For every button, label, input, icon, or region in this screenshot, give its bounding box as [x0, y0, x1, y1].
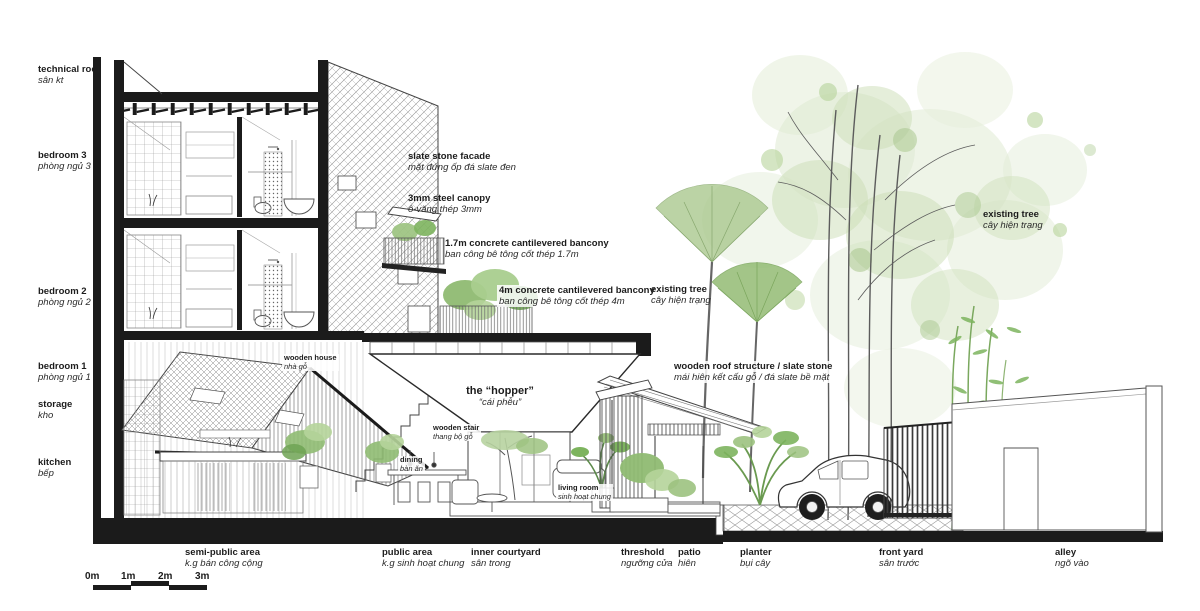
label-existing-tree-left: existing tree cây hiện trạng	[651, 284, 711, 306]
label-steel-canopy: 3mm steel canopy ô-văng thép 3mm	[408, 193, 490, 215]
label-bedroom-3: bedroom 3 phòng ngủ 3	[38, 150, 91, 172]
scale-tick-0m: 0m	[85, 571, 99, 582]
label-balcony-17m: 1.7m concrete cantilevered bancony ban c…	[445, 238, 609, 260]
label-zone-alley: alley ngõ vào	[1055, 547, 1089, 569]
label-balcony-4m: 4m concrete cantilevered bancony ban côn…	[497, 285, 657, 307]
label-wooden-roof: wooden roof structure / slate stone mái …	[672, 361, 834, 383]
label-zone-courtyard: inner courtyard sân trong	[471, 547, 541, 569]
label-hopper: the “hopper” “cái phễu”	[430, 386, 570, 408]
label-zone-public: public area k.g sinh hoạt chung	[382, 547, 464, 569]
section-drawing: technical roof sân kt bedroom 3 phòng ng…	[0, 0, 1200, 611]
label-zone-planter: planter bụi cây	[740, 547, 772, 569]
label-wooden-house: wooden house nhà gỗ	[282, 354, 339, 371]
label-existing-tree-right: existing tree cây hiện trạng	[983, 209, 1043, 231]
label-bedroom-1: bedroom 1 phòng ngủ 1	[38, 361, 91, 383]
label-wooden-stair: wooden stair thang bộ gỗ	[431, 424, 481, 441]
label-zone-semi-public: semi-public area k.g bán công cộng	[185, 547, 263, 569]
label-zone-patio: patio hiên	[678, 547, 701, 569]
scale-bar	[93, 581, 207, 590]
label-zone-front-yard: front yard sân trước	[879, 547, 923, 569]
label-technical-roof: technical roof sân kt	[38, 64, 100, 86]
scale-tick-1m: 1m	[121, 571, 135, 582]
roof-louvers	[124, 103, 318, 115]
label-dining: dining bàn ăn	[398, 456, 425, 473]
label-living-room: living room sinh hoạt chung	[556, 484, 613, 501]
label-storage: storage kho	[38, 399, 72, 421]
building-section	[93, 57, 466, 522]
alley-boundary-wall	[952, 386, 1162, 532]
label-bedroom-2: bedroom 2 phòng ngủ 2	[38, 286, 91, 308]
label-zone-threshold: threshold ngưỡng cửa	[621, 547, 673, 569]
scale-tick-2m: 2m	[158, 571, 172, 582]
scale-tick-3m: 3m	[195, 571, 209, 582]
label-kitchen: kitchen bếp	[38, 457, 71, 479]
label-slate-facade: slate stone facade mặt đứng ốp đá slate …	[408, 151, 516, 173]
